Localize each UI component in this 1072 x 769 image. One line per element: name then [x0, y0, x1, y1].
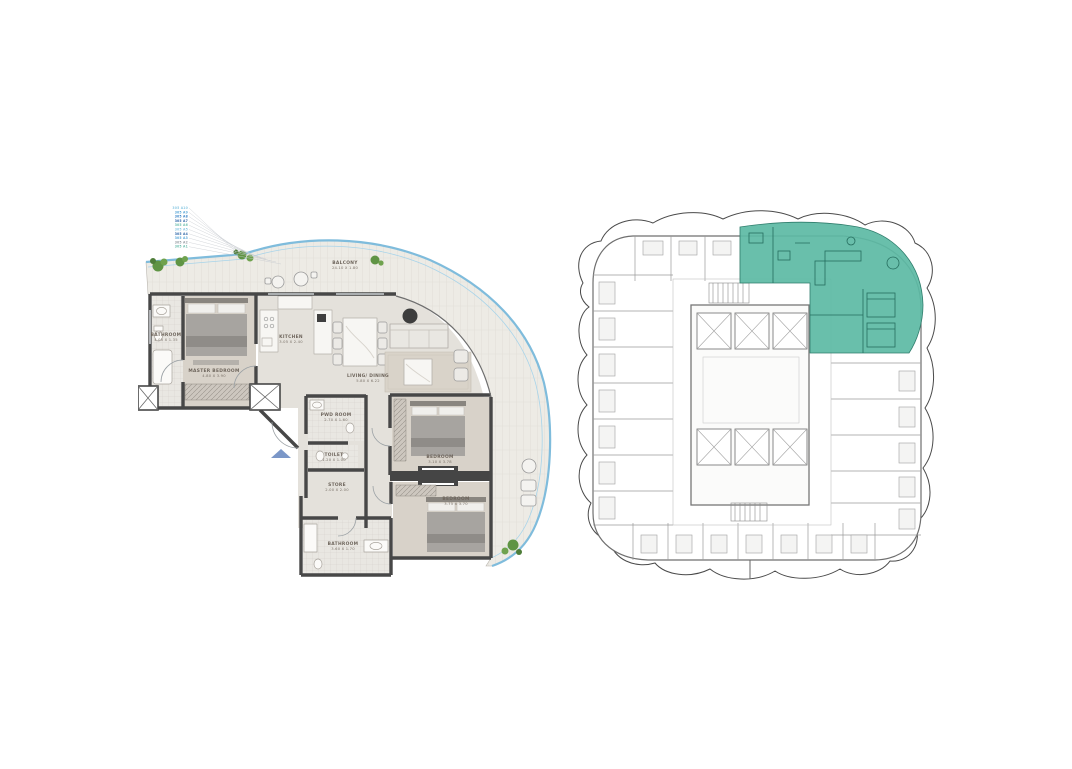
room-dims-living: 5.80 X 6.22 [356, 379, 380, 383]
room-dims-pwd: 2.70 X 1.60 [324, 418, 348, 422]
master-wardrobe [185, 384, 249, 400]
bedroom1-furniture [394, 399, 466, 461]
dining-set [333, 318, 387, 366]
floor-plan-sheet: 305 A10 305 A9 305 A8 305 A7 305 A6 305 … [0, 0, 1072, 769]
room-dims-master: 4.80 X 3.90 [202, 374, 226, 378]
room-dims-kitchen: 3.05 X 2.40 [279, 340, 303, 344]
room-dims-bathroom2: 3.60 X 1.70 [331, 547, 355, 551]
room-dims-toilet: 1.20 X 1.00 [322, 458, 346, 462]
room-dims-bathroom1: 4.05 X 1.35 [154, 338, 178, 342]
room-dims-bedroom2: 3.75 X 3.70 [444, 502, 468, 506]
room-dims-balcony: 24.10 X 1.80 [332, 266, 358, 270]
unit-floor-plan: 305 A10 305 A9 305 A8 305 A7 305 A6 305 … [138, 198, 562, 586]
room-dims-bedroom1: 3.10 X 3.78 [428, 460, 452, 464]
entry-arrow-icon [271, 449, 291, 458]
level-ref: 305 A1 [175, 245, 188, 249]
building-key-plan [563, 203, 943, 585]
side-table [403, 309, 418, 324]
room-dims-store: 2.00 X 2.00 [325, 488, 349, 492]
